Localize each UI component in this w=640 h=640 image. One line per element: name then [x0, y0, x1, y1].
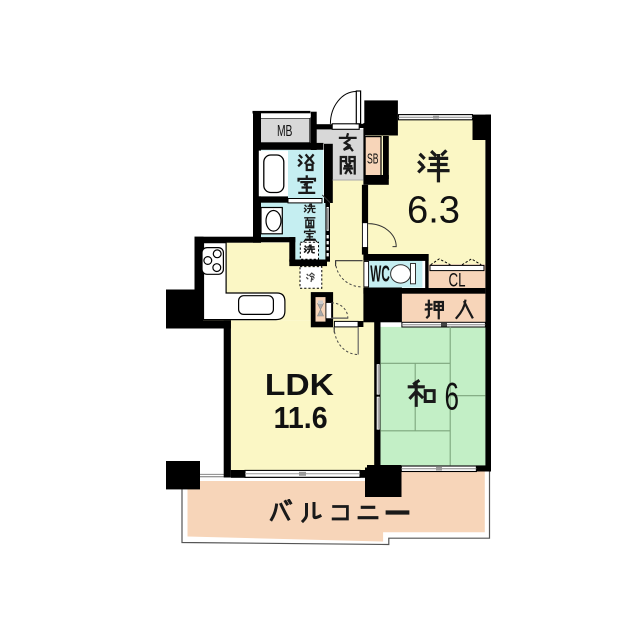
svg-text:6: 6: [445, 376, 460, 419]
svg-text:LDK: LDK: [265, 367, 335, 402]
svg-text:MB: MB: [277, 123, 293, 140]
svg-text:SB: SB: [367, 151, 379, 168]
svg-text:WC: WC: [370, 261, 390, 287]
svg-text:11.6: 11.6: [274, 400, 328, 435]
svg-text:CL: CL: [449, 269, 466, 291]
svg-text:6.3: 6.3: [407, 190, 460, 232]
